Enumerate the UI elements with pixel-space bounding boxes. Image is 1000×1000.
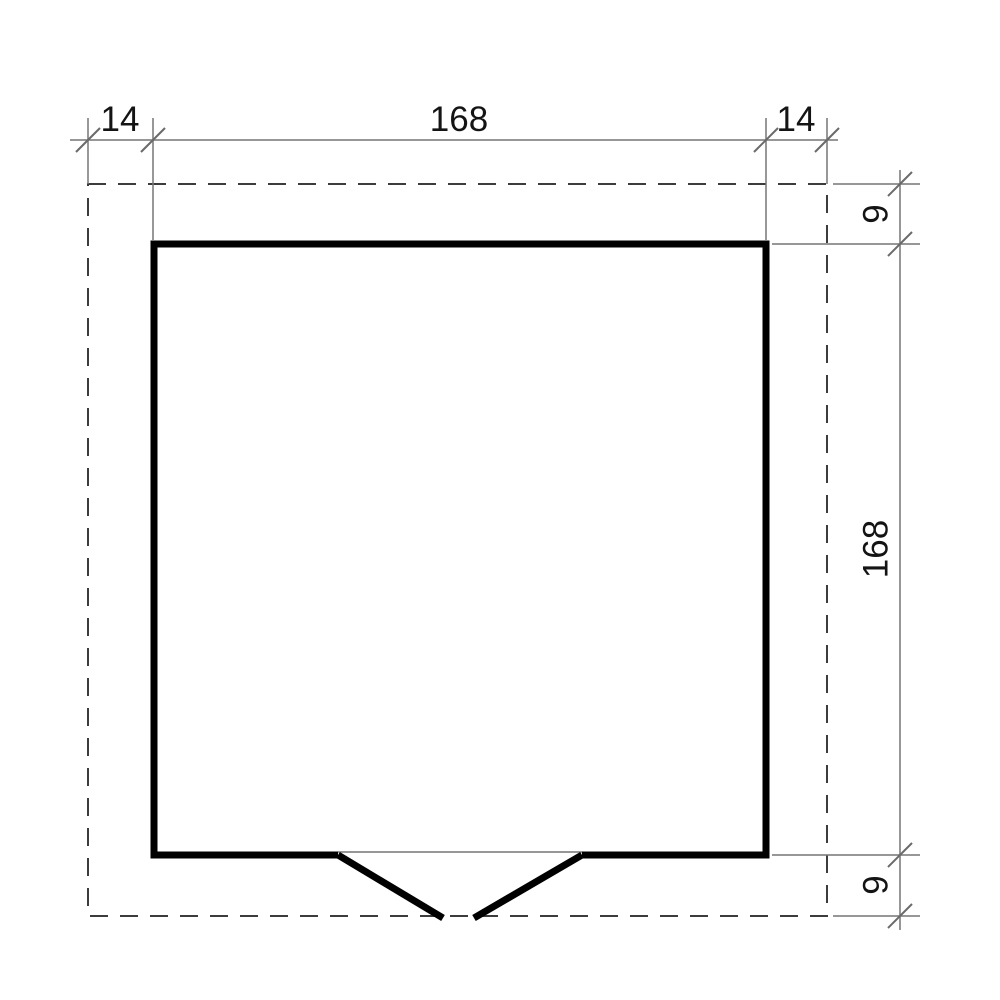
door-leaf-right (474, 855, 582, 918)
wall-outline (154, 244, 766, 855)
dimension-label-right-top-overhang: 9 (857, 204, 896, 223)
right-dimension-chain: 9 168 9 (772, 170, 920, 930)
dimension-label-top-left-overhang: 14 (101, 100, 140, 139)
dimension-label-top-width: 168 (430, 100, 488, 139)
floor-plan-svg: 14 168 14 9 168 9 (0, 0, 1000, 1000)
roof-overhang-outline-dashed (88, 184, 827, 916)
dimension-label-right-bottom-overhang: 9 (857, 875, 896, 894)
drawing-canvas: 14 168 14 9 168 9 (0, 0, 1000, 1000)
door-leaf-left (338, 855, 443, 918)
dimension-label-right-depth: 168 (857, 520, 896, 578)
top-dimension-chain: 14 168 14 (70, 100, 839, 240)
dimension-label-top-right-overhang: 14 (777, 100, 816, 139)
